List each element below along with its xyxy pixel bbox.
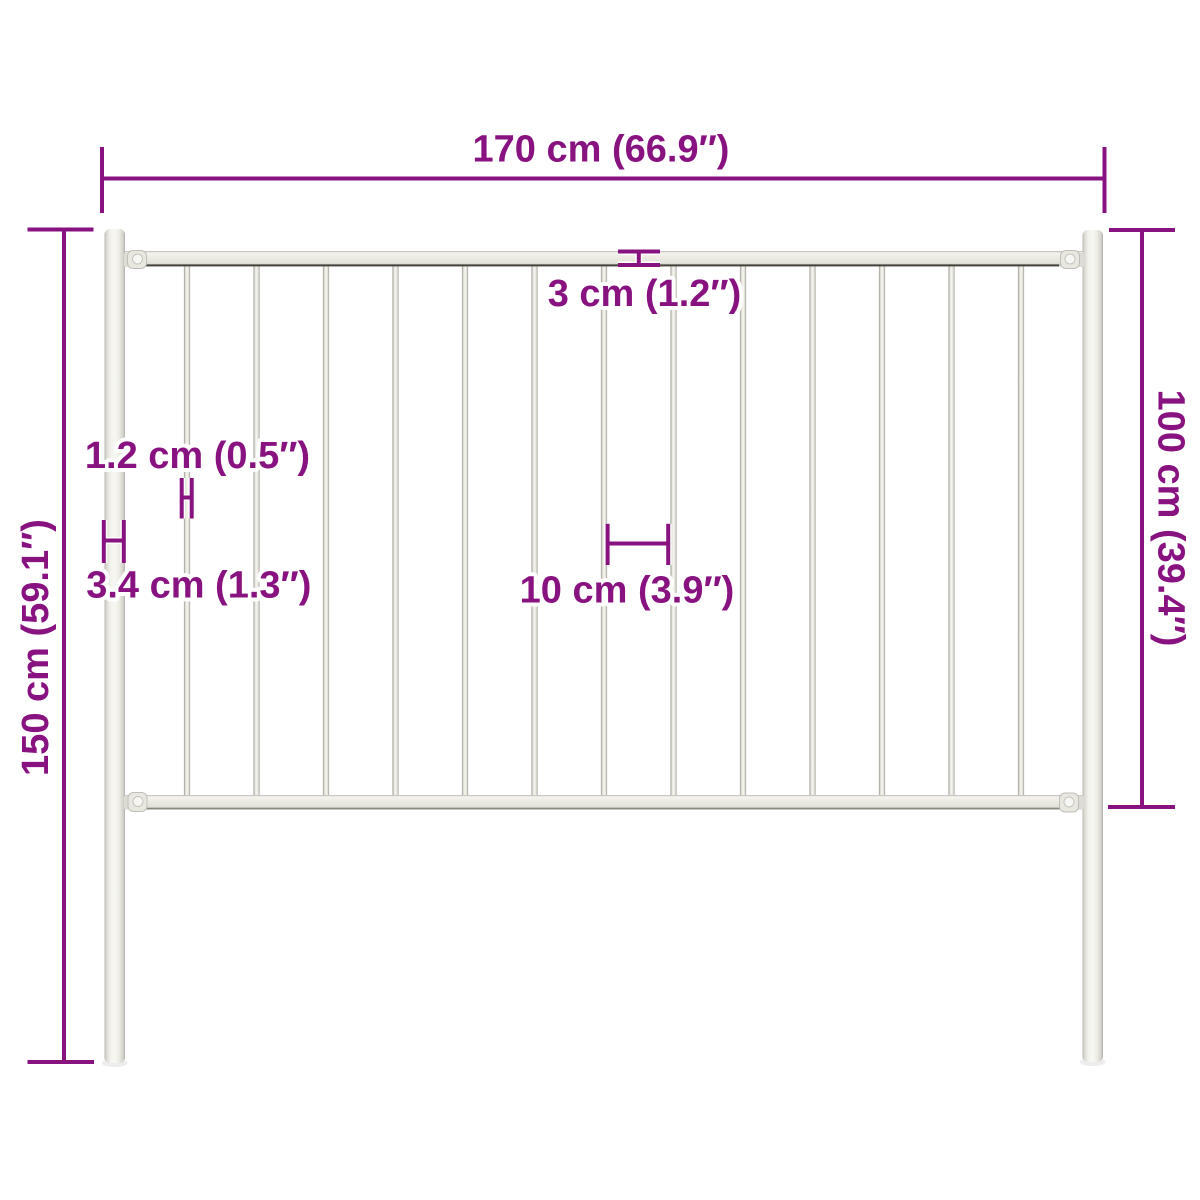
svg-text:3 cm (1.2″): 3 cm (1.2″) <box>548 273 742 315</box>
svg-text:1.2 cm (0.5″): 1.2 cm (0.5″) <box>85 435 310 477</box>
svg-text:170 cm (66.9″): 170 cm (66.9″) <box>473 129 730 171</box>
svg-text:100 cm (39.4″): 100 cm (39.4″) <box>1150 390 1192 647</box>
svg-text:3.4 cm (1.3″): 3.4 cm (1.3″) <box>86 565 311 607</box>
svg-text:10 cm (3.9″): 10 cm (3.9″) <box>520 570 735 612</box>
svg-text:150 cm (59.1″): 150 cm (59.1″) <box>15 519 57 776</box>
